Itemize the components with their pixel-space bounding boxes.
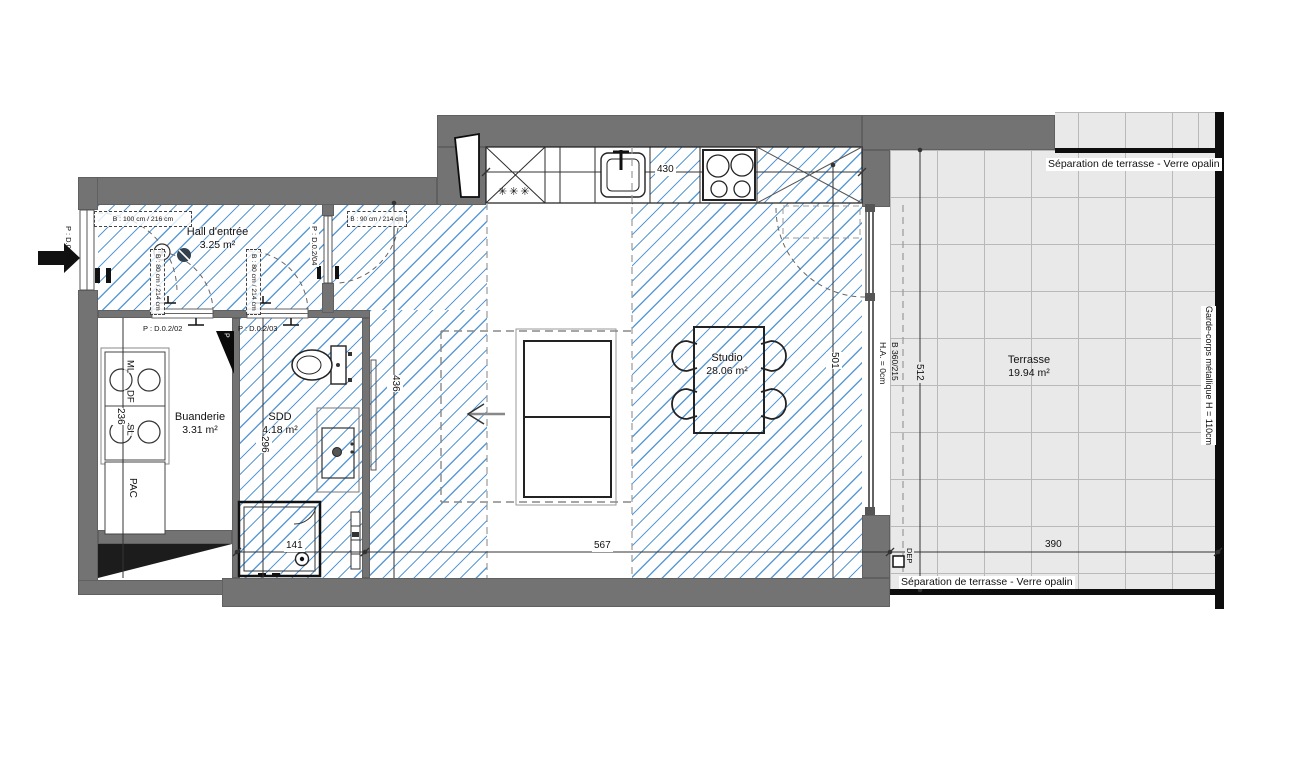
radiator-icon (351, 512, 360, 569)
floor-plan: Hall d'entrée 3.25 m² Buanderie 3.31 m² … (0, 0, 1302, 775)
window-spec: B : 90 cm / 214 cm (350, 216, 403, 223)
room-label-terrasse: Terrasse 19.94 m² (979, 353, 1079, 381)
door-label-studio: P : D.0.2/04 (310, 224, 319, 267)
toilet-icon (292, 346, 352, 384)
wall-panel (371, 360, 376, 470)
bay-window-label: B 360/215 H.A. = 0cm (876, 342, 900, 384)
door-width-label-left: B : 80 cm / 214 cm (150, 249, 165, 315)
dim-430: 430 (655, 164, 676, 176)
window-spec: B : 100 cm / 216 cm (113, 216, 173, 223)
separation-bottom-label: Séparation de terrasse - Verre opalin (899, 576, 1075, 589)
label-slope: P (221, 333, 229, 338)
duct-shape (455, 134, 479, 197)
room-area: 28.06 m² (677, 365, 777, 379)
dim-296: 296 (256, 436, 272, 453)
railing-label: Garde-corps métallique H = 110cm (1201, 306, 1216, 445)
dim-141: 141 (284, 540, 305, 552)
separation-top-label: Séparation de terrasse - Verre opalin (1046, 158, 1222, 171)
room-name: SDD (240, 410, 320, 424)
window-label-100: B : 100 cm / 216 cm (94, 211, 192, 227)
door-width-spec: B : 80 cm / 214 cm (250, 254, 257, 311)
label-df: DF (124, 390, 135, 403)
room-area: 3.31 m² (150, 424, 250, 438)
room-name: Buanderie (150, 410, 250, 424)
dim-501: 501 (826, 352, 842, 369)
dining-table-icon (672, 327, 786, 433)
room-name: Hall d'entrée (160, 225, 275, 239)
label-ml: ML (124, 360, 135, 373)
dim-436: 436 (387, 375, 403, 392)
room-label-sdd: SDD 4.18 m² (240, 410, 320, 438)
fridge-symbol: ✳✳✳ (498, 186, 532, 199)
dim-512: 512 (913, 362, 925, 383)
door-width-spec: B : 80 cm / 214 cm (154, 254, 161, 311)
door-label-sdd: P : D.0.2/03 (238, 324, 277, 333)
label-pac: PAC (126, 478, 138, 498)
room-area: 4.18 m² (240, 424, 320, 438)
entry-arrow-icon (38, 243, 80, 273)
dim-567: 567 (592, 540, 613, 552)
door-width-label-right: B : 80 cm / 214 cm (246, 249, 261, 315)
bay-type: B 360/215 (888, 342, 900, 384)
door-label-buanderie: P : D.0.2/02 (143, 324, 182, 333)
void-wedge (98, 544, 232, 578)
dim-236: 236 (112, 408, 128, 425)
room-name: Studio (677, 351, 777, 365)
vanity-icon (317, 408, 359, 492)
bay-height: H.A. = 0cm (876, 342, 888, 384)
room-area: 19.94 m² (979, 367, 1079, 381)
window-label-90: B : 90 cm / 214 cm (347, 211, 407, 227)
bed-icon (468, 329, 616, 505)
door-label-entry: P : D.0.2/01 (64, 226, 73, 265)
dim-390: 390 (1043, 539, 1064, 551)
shower-icon (239, 502, 320, 577)
sink-icon (601, 150, 645, 197)
label-dep: DEP (905, 548, 914, 563)
room-name: Terrasse (979, 353, 1079, 367)
stove-icon (703, 150, 755, 200)
plan-linework (0, 0, 1302, 775)
dep-box (893, 556, 904, 567)
pac-unit (105, 462, 165, 534)
label-sl: SL (124, 424, 135, 436)
room-label-buanderie: Buanderie 3.31 m² (150, 410, 250, 438)
room-label-studio: Studio 28.06 m² (677, 351, 777, 379)
